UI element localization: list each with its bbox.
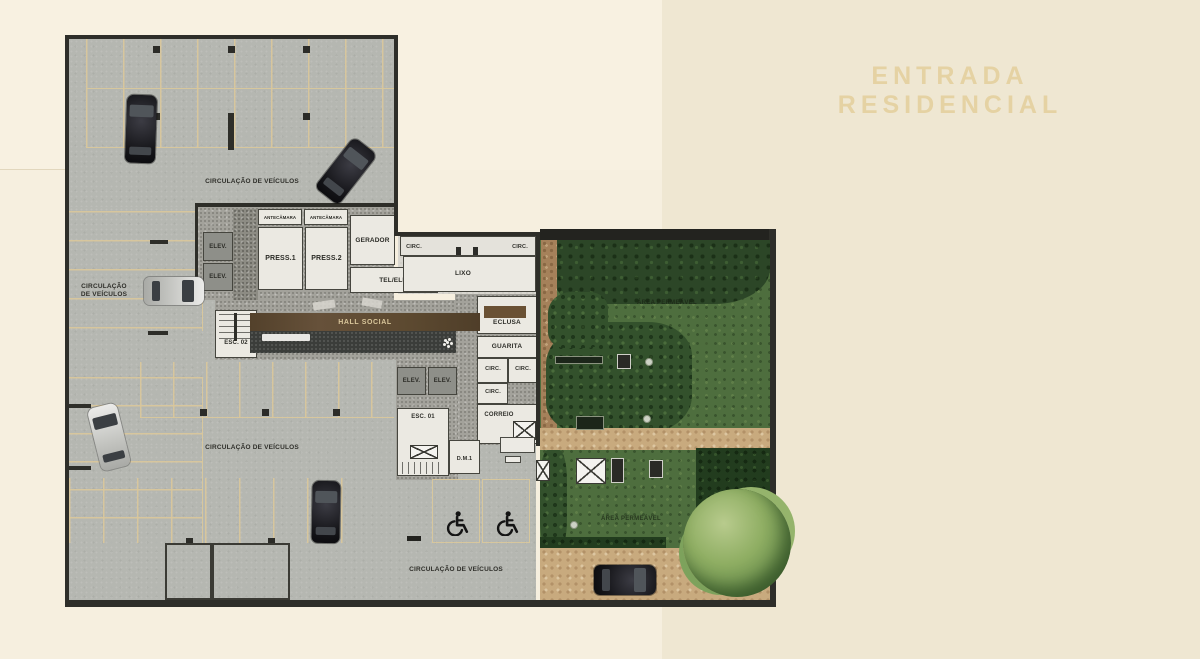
car-black	[311, 481, 340, 543]
wall-stub	[148, 331, 168, 335]
car-windshield	[129, 105, 153, 118]
room-label: ELEV.	[403, 378, 420, 384]
wall-strip-top	[398, 232, 542, 236]
car-windshield	[315, 491, 337, 503]
room-press1: PRESS.1	[258, 227, 303, 290]
column	[153, 46, 160, 53]
area-permeavel-label: ÁREA PERMEÁVEL	[599, 516, 663, 522]
stair-rail	[234, 313, 237, 341]
column	[473, 247, 478, 255]
garden-tree	[683, 489, 791, 597]
wall-top	[65, 35, 398, 39]
garage-floor-mid	[195, 360, 396, 445]
car-rear-window	[152, 281, 160, 301]
circulation-label-top: CIRCULAÇÃO DE VEÍCULOS	[204, 178, 300, 185]
room-label: ELEV.	[209, 244, 226, 250]
room-label: CIRC.	[504, 244, 536, 250]
room-elevator: ELEV.	[397, 367, 426, 395]
room-label: ESC. 01	[398, 414, 448, 420]
accessible-parking-stall	[432, 479, 480, 543]
bench-seat	[262, 334, 310, 341]
wheelchair-icon	[443, 510, 469, 536]
car-rear-window	[602, 569, 610, 591]
wall-stub	[69, 404, 91, 408]
garden-light	[570, 521, 578, 529]
car-windshield	[92, 413, 118, 430]
room-label: ANTECÂMARA	[264, 215, 296, 220]
car-windshield	[343, 146, 369, 170]
storage-room	[212, 543, 290, 600]
room-label: PRESS.1	[265, 255, 296, 262]
equipment-box	[505, 456, 521, 463]
equipment-box	[500, 437, 535, 453]
garden-light	[643, 415, 651, 423]
wall-core-top	[195, 203, 398, 207]
room-elevator: ELEV.	[203, 263, 233, 291]
room-label: CIRC.	[478, 389, 508, 395]
room-label: ANTECÂMARA	[310, 215, 342, 220]
equipment-box	[407, 536, 421, 541]
garden-shrubs	[548, 292, 608, 348]
room-label: GERADOR	[355, 237, 389, 244]
accessible-parking-stall	[482, 479, 530, 543]
room-label: ECLUSA	[479, 319, 535, 326]
column	[303, 46, 310, 53]
wall-bottom	[65, 600, 776, 607]
circulation-label-left: CIRCULAÇÃODE VEÍCULOS	[77, 283, 131, 299]
hall-social: HALL SOCIAL	[250, 313, 480, 331]
wall-stub	[228, 113, 234, 150]
garden-bench	[576, 416, 604, 430]
car-windshield	[634, 568, 646, 592]
car-rear-window	[316, 527, 336, 535]
garden-bench	[555, 356, 603, 364]
background-crease-line	[0, 169, 66, 170]
grate-icon	[576, 458, 606, 484]
car-black	[125, 94, 157, 163]
room-label: D.M.1	[449, 456, 480, 462]
area-permeavel-label: ÁREA PERMEÁVEL	[637, 300, 697, 306]
plant-icon	[446, 341, 449, 344]
circulation-label-line1: CIRCULAÇÃO	[81, 283, 127, 290]
car-windshield	[182, 280, 194, 302]
room-elevator: ELEV.	[203, 232, 233, 261]
room-label: CIRC.	[509, 366, 537, 372]
column	[456, 247, 461, 255]
room-label: ELEV.	[434, 378, 451, 384]
room-label: CORREIO	[478, 412, 520, 418]
column	[200, 409, 207, 416]
garden-planter	[617, 354, 631, 369]
room-label: CIRC.	[398, 244, 430, 250]
room-antecamara: ANTECÂMARA	[304, 209, 348, 225]
garden-path-horizontal	[540, 428, 770, 450]
circulation-label-bottom: CIRCULAÇÃO DE VEÍCULOS	[408, 566, 504, 573]
room-gerador: GERADOR	[350, 215, 395, 265]
wall-left	[65, 35, 69, 607]
car-silver	[144, 277, 204, 305]
garden-planter	[611, 458, 624, 483]
storage-room	[165, 543, 212, 600]
circulation-label-mid: CIRCULAÇÃO DE VEÍCULOS	[204, 444, 300, 451]
room-antecamara: ANTECÂMARA	[258, 209, 302, 225]
wall-stub	[69, 466, 91, 470]
car-rear-window	[129, 147, 151, 156]
room-label: PRESS.2	[311, 255, 342, 262]
page-title: ENTRADA RESIDENCIAL	[778, 62, 1122, 120]
stair-treads	[402, 462, 444, 474]
garden-planter	[649, 460, 663, 478]
column	[303, 113, 310, 120]
room-label: ELEV.	[209, 274, 226, 280]
car-black	[594, 565, 656, 595]
grate-icon	[410, 445, 438, 459]
room-label: CIRC.	[478, 366, 508, 372]
column	[262, 409, 269, 416]
car-rear-window	[102, 450, 125, 463]
wheelchair-icon	[493, 510, 519, 536]
floor-plan-page: ENTRADA RESIDENCIAL ELEV. ELEV. ANTECÂMA…	[0, 0, 1200, 659]
wall-stub	[150, 240, 168, 244]
garage-floor-sliver	[195, 300, 215, 360]
grate-icon	[536, 460, 550, 481]
column	[333, 409, 340, 416]
circulation-label-line2: DE VEÍCULOS	[81, 291, 127, 298]
wall-garden-top	[540, 229, 774, 240]
room-label: HALL SOCIAL	[338, 319, 392, 326]
room-label: LIXO	[433, 270, 493, 277]
column	[228, 46, 235, 53]
room-elevator: ELEV.	[428, 367, 457, 395]
room-label: GUARITA	[479, 343, 535, 350]
room-press2: PRESS.2	[305, 227, 348, 290]
car-rear-window	[323, 177, 345, 197]
elevator-lobby-floor	[233, 209, 258, 300]
garden-light	[645, 358, 653, 366]
eclusa-doormat	[484, 306, 526, 318]
